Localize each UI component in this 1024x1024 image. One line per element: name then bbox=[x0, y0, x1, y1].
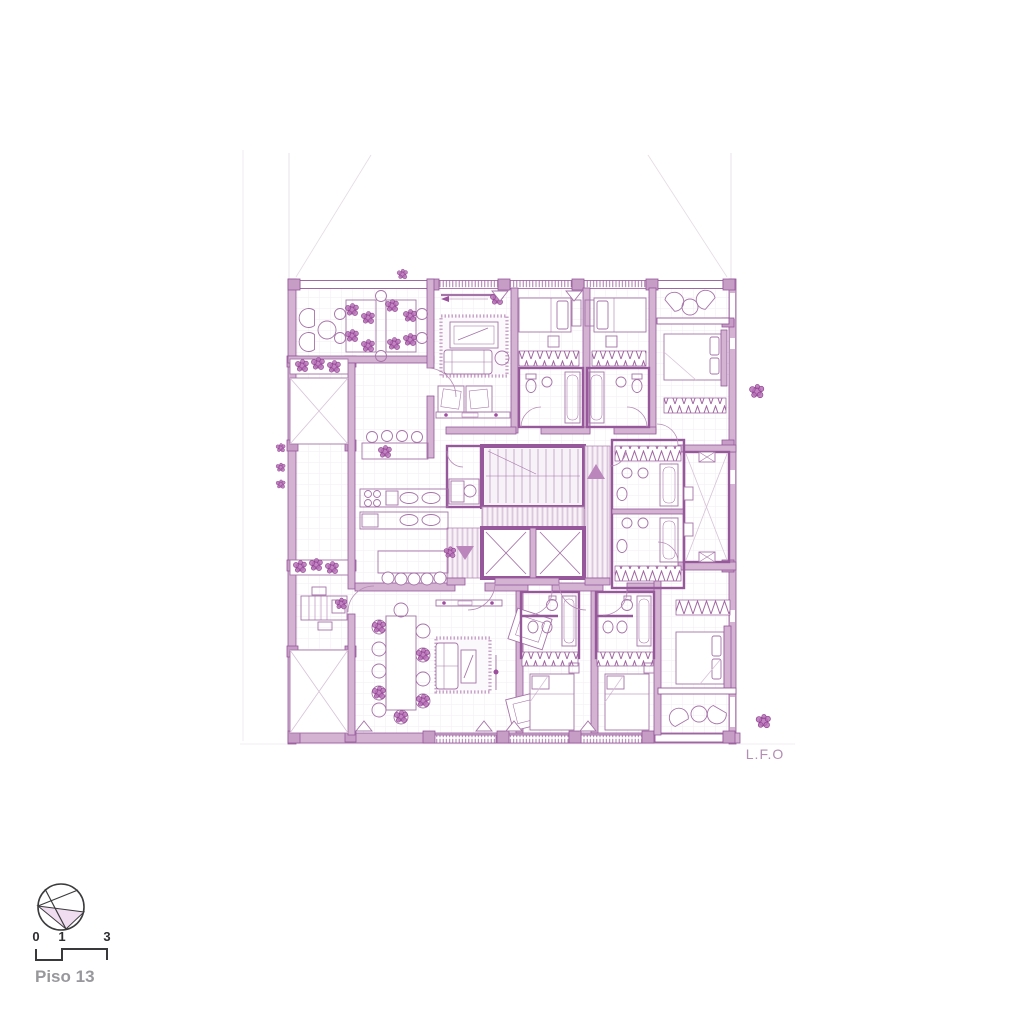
elevator-shafts bbox=[482, 528, 584, 578]
scale-tick-0: 0 bbox=[32, 929, 39, 944]
scale-tick-3: 3 bbox=[103, 929, 110, 944]
north-arrow-icon bbox=[38, 884, 84, 930]
bedroom-top-right bbox=[664, 330, 764, 413]
elevator-lobby bbox=[482, 507, 584, 528]
sheet: L.F.O 0 1 3 Piso 13 bbox=[0, 0, 1024, 1024]
bedroom-top-2 bbox=[585, 298, 646, 366]
floor-plan-drawing: L.F.O 0 1 3 Piso 13 bbox=[0, 0, 1024, 1024]
author-initials: L.F.O bbox=[746, 746, 784, 762]
scale-bar: 0 1 3 bbox=[32, 929, 110, 960]
scale-tick-1: 1 bbox=[58, 929, 65, 944]
core-corridor bbox=[585, 446, 610, 578]
floor-label: Piso 13 bbox=[35, 967, 95, 986]
